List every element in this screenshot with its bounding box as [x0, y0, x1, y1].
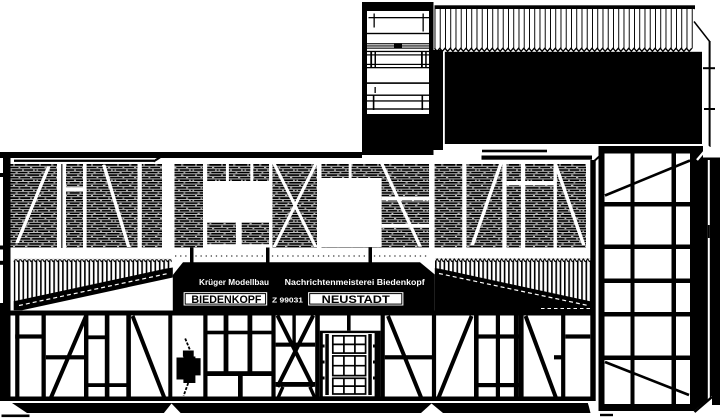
svg-text:BIEDENKOPF: BIEDENKOPF — [191, 294, 261, 306]
svg-text:Krüger Modellbau: Krüger Modellbau — [199, 277, 269, 287]
svg-text:NEUSTADT: NEUSTADT — [322, 294, 390, 306]
svg-text:Nachrichtenmeisterei Biedenkop: Nachrichtenmeisterei Biedenkopf — [285, 277, 425, 287]
svg-text:Z 99031: Z 99031 — [272, 295, 303, 304]
